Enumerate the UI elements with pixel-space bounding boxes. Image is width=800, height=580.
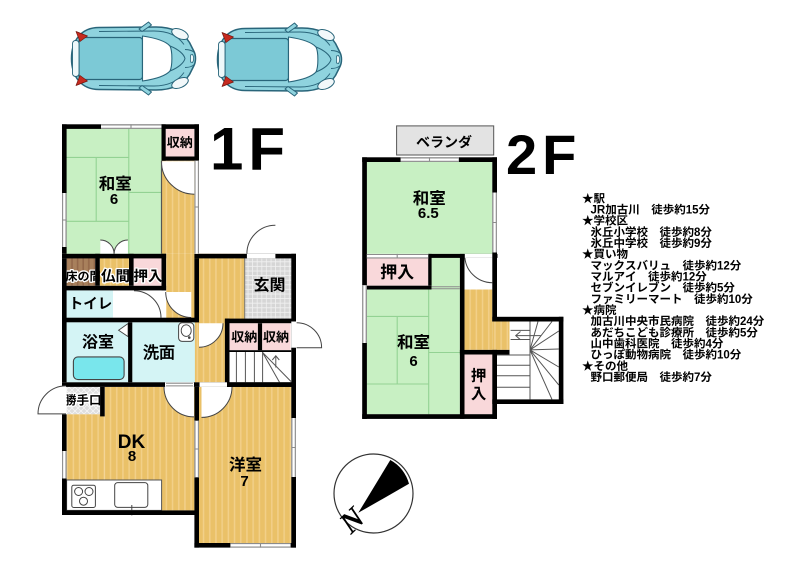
svg-text:トイレ: トイレ bbox=[69, 293, 113, 314]
svg-text:洗面: 洗面 bbox=[143, 339, 175, 363]
svg-text:入: 入 bbox=[471, 382, 487, 404]
svg-text:1F: 1F bbox=[210, 101, 290, 188]
svg-text:浴室: 浴室 bbox=[82, 329, 114, 353]
svg-text:押入: 押入 bbox=[134, 265, 163, 286]
svg-text:7: 7 bbox=[240, 470, 248, 491]
svg-text:6: 6 bbox=[110, 188, 118, 209]
svg-text:6.5: 6.5 bbox=[418, 202, 439, 223]
svg-text:ベランダ: ベランダ bbox=[416, 132, 472, 152]
svg-text:野口郵便局 徒歩約7分: 野口郵便局 徒歩約7分 bbox=[591, 369, 713, 385]
svg-text:収納: 収納 bbox=[263, 327, 289, 346]
svg-text:勝手口: 勝手口 bbox=[64, 390, 102, 409]
svg-text:玄関: 玄関 bbox=[253, 272, 285, 296]
svg-text:収納: 収納 bbox=[167, 132, 193, 151]
svg-text:仏間: 仏間 bbox=[101, 265, 130, 286]
svg-text:6: 6 bbox=[409, 350, 417, 371]
svg-text:8: 8 bbox=[128, 445, 136, 466]
svg-text:押入: 押入 bbox=[380, 258, 414, 283]
svg-text:2F: 2F bbox=[506, 110, 581, 191]
svg-text:収納: 収納 bbox=[231, 327, 257, 346]
